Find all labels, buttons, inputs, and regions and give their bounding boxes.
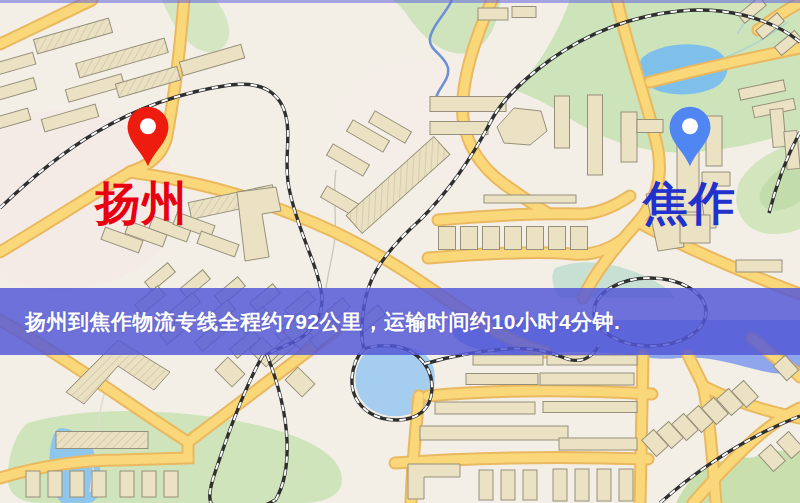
route-info-banner: 扬州到焦作物流专线全程约792公里，运输时间约10小时4分钟. (0, 288, 800, 355)
location-pin-icon (123, 104, 173, 168)
origin-marker-label: 扬州 (95, 180, 187, 226)
map-screenshot: 扬州到焦作物流专线全程约792公里，运输时间约10小时4分钟. 扬州 焦作 (0, 0, 800, 503)
destination-marker-label: 焦作 (643, 180, 735, 226)
location-pin-icon (665, 104, 715, 168)
map-base (0, 0, 800, 503)
top-edge-tint (0, 0, 800, 3)
route-info-text: 扬州到焦作物流专线全程约792公里，运输时间约10小时4分钟. (25, 308, 620, 336)
origin-marker: 扬州 (123, 104, 173, 224)
destination-marker: 焦作 (665, 104, 715, 224)
